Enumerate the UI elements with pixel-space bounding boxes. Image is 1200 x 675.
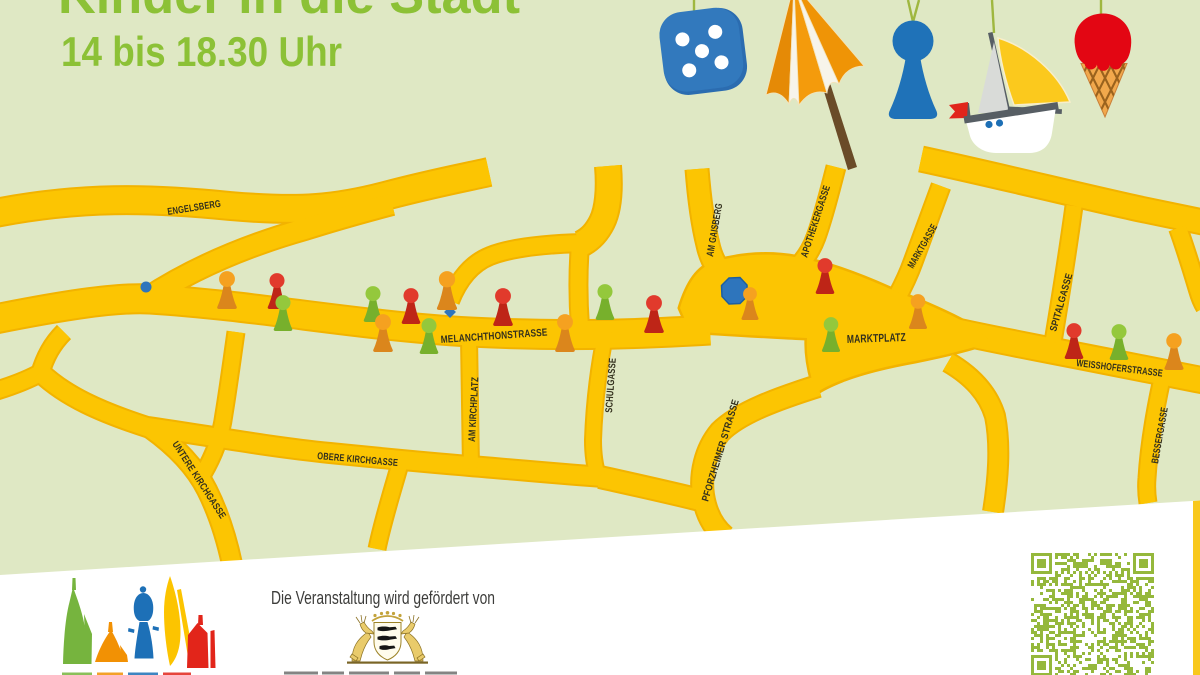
svg-text:Die Veranstaltung wird geförde: Die Veranstaltung wird gefördert von (271, 588, 495, 608)
svg-text:14 bis 18.30 Uhr: 14 bis 18.30 Uhr (61, 28, 342, 75)
svg-text:Kinder in die Stadt: Kinder in die Stadt (58, 0, 520, 25)
svg-text:MARKTPLATZ: MARKTPLATZ (847, 332, 906, 346)
